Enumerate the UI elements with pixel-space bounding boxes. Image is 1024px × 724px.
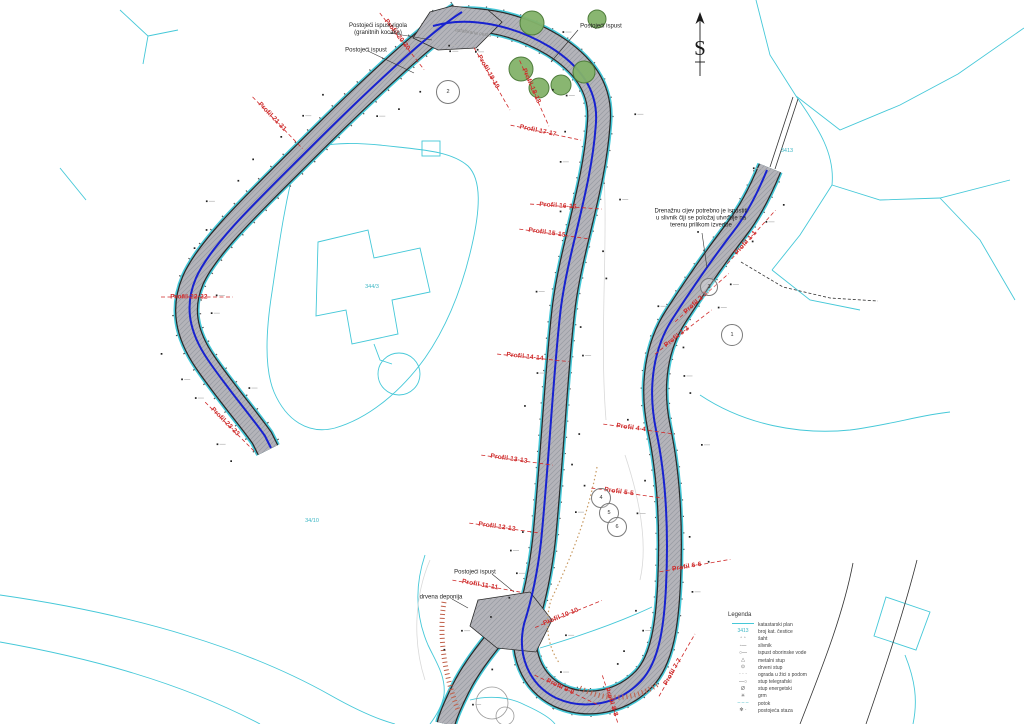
legend-label: drveni stup (758, 665, 782, 671)
legend-label: potok (758, 701, 770, 707)
legend-label: postojeća staza (758, 708, 793, 714)
legend-item: ✳grm (728, 693, 868, 700)
legend-label: slivnik (758, 643, 772, 649)
legend-label: grm (758, 693, 767, 699)
legend-item: – – –potok (728, 700, 868, 707)
legend-item: ○—ispust oborinske vode (728, 650, 868, 657)
site-plan: asfaltirana cesta Profil 1-1Profil 2-2Pr… (0, 0, 1024, 724)
legend-item: ✻ ·postojeća staza (728, 707, 868, 714)
legend-symbol-grm: ✳ (728, 694, 758, 699)
legend-label: ispust oborinske vode (758, 650, 806, 656)
legend-item: ◦—slivnik (728, 643, 868, 650)
legend-symbol-pole-t: —○ (728, 680, 758, 685)
detail-circles (476, 687, 514, 724)
legend-symbol-triangle: △ (728, 658, 758, 663)
legend-item: △metalni stup (728, 657, 868, 664)
legend-label: ograda u žici s podom (758, 672, 807, 678)
legend-item: ⊙drveni stup (728, 664, 868, 671)
legend-item: 3413broj kat. čestice (728, 628, 868, 635)
legend-item: ▫ ▫šaht (728, 635, 868, 642)
legend-item: Østup energetski (728, 686, 868, 693)
legend-symbol-fence: · · · (728, 672, 758, 677)
legend-title: Legenda (728, 612, 868, 618)
legend-rows: katastarski plan3413broj kat. čestice▫ ▫… (728, 621, 868, 714)
legend-symbol-circle-dot: ⊙ (728, 665, 758, 670)
legend-item: katastarski plan (728, 621, 868, 628)
legend-symbol-potok: – – – (728, 701, 758, 706)
legend: Legenda katastarski plan3413broj kat. če… (728, 612, 868, 714)
legend-symbol-slivnik: ◦— (728, 644, 758, 649)
legend-label: stup energetski (758, 686, 792, 692)
profile-cut-lines (161, 13, 775, 724)
legend-symbol-pole-e: Ø (728, 687, 758, 692)
legend-symbol-squares: ▫ ▫ (728, 636, 758, 641)
north-letter: S (686, 36, 714, 61)
legend-item: —○stup telegrafski (728, 679, 868, 686)
north-arrow: S (686, 10, 714, 82)
survey-points (161, 25, 785, 706)
legend-label: stup telegrafski (758, 679, 792, 685)
legend-label: šaht (758, 636, 767, 642)
legend-symbol-ispust: ○— (728, 651, 758, 656)
legend-symbol-cyan-number: 3413 (728, 629, 758, 634)
legend-symbol-cyan-line (728, 622, 758, 627)
legend-item: · · ·ograda u žici s podom (728, 671, 868, 678)
legend-symbol-stone: ✻ · (728, 708, 758, 713)
site-plan-drawing (0, 0, 1024, 724)
legend-label: metalni stup (758, 658, 785, 664)
legend-label: katastarski plan (758, 622, 793, 628)
legend-label: broj kat. čestice (758, 629, 793, 635)
